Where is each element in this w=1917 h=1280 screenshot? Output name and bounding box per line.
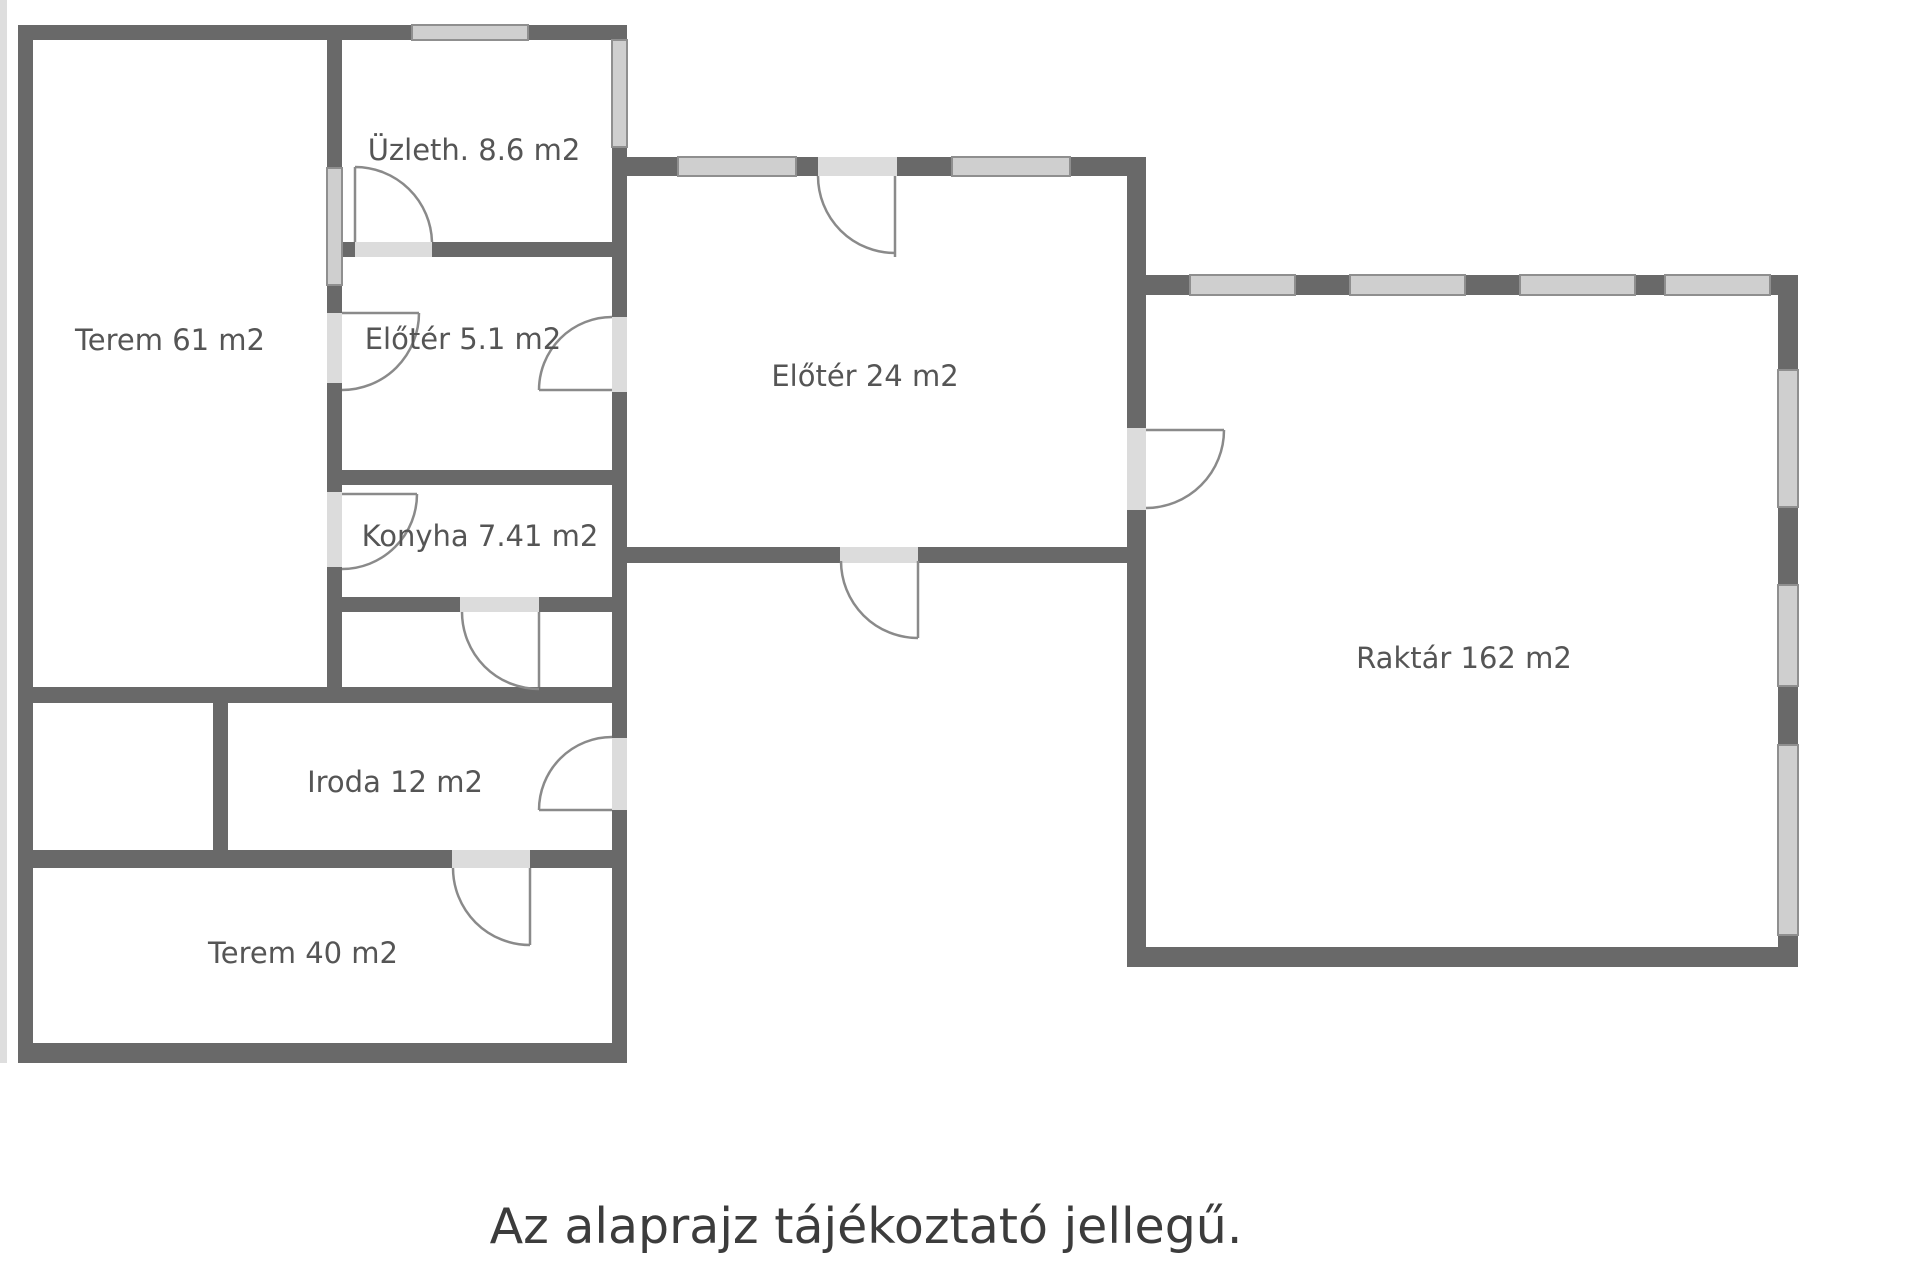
floor-plan-canvas: Terem 61 m2 Üzleth. 8.6 m2 Előtér 5.1 m2… — [0, 0, 1917, 1280]
wall — [213, 703, 228, 850]
window — [1520, 275, 1635, 295]
door-opening — [612, 317, 627, 392]
room-label-eloter51: Előtér 5.1 m2 — [365, 322, 562, 356]
window — [952, 157, 1070, 176]
door-opening — [452, 850, 530, 868]
window — [327, 168, 342, 285]
door-opening — [460, 597, 539, 612]
image-edge-strip — [0, 0, 7, 1063]
wall — [342, 470, 612, 485]
room-label-terem61: Terem 61 m2 — [74, 323, 265, 357]
window — [1190, 275, 1295, 295]
door-opening — [327, 313, 342, 383]
door-opening — [1127, 428, 1146, 510]
wall — [612, 25, 627, 1063]
window — [1778, 370, 1798, 507]
door-opening — [818, 157, 897, 176]
room-label-uzleth: Üzleth. 8.6 m2 — [368, 133, 581, 167]
window — [1778, 585, 1798, 686]
wall — [1127, 947, 1798, 967]
wall — [18, 1043, 627, 1063]
window — [678, 157, 796, 176]
wall — [33, 687, 612, 703]
room-label-iroda: Iroda 12 m2 — [307, 765, 483, 799]
wall — [18, 25, 627, 40]
door-opening — [355, 242, 432, 257]
window — [412, 25, 528, 40]
background — [0, 0, 1917, 1280]
room-label-eloter24: Előtér 24 m2 — [771, 359, 958, 393]
room-label-konyha: Konyha 7.41 m2 — [362, 519, 599, 553]
door-opening — [327, 492, 342, 567]
wall — [1127, 157, 1146, 967]
wall — [18, 25, 33, 1063]
caption: Az alaprajz tájékoztató jellegű. — [490, 1198, 1243, 1255]
window — [612, 40, 627, 147]
window — [1778, 745, 1798, 935]
door-opening — [840, 547, 918, 563]
room-label-terem40: Terem 40 m2 — [207, 936, 398, 970]
floor-plan: Terem 61 m2 Üzleth. 8.6 m2 Előtér 5.1 m2… — [0, 0, 1917, 1280]
window — [1665, 275, 1770, 295]
room-label-raktar: Raktár 162 m2 — [1356, 641, 1572, 675]
door-opening — [612, 738, 627, 810]
window — [1350, 275, 1465, 295]
